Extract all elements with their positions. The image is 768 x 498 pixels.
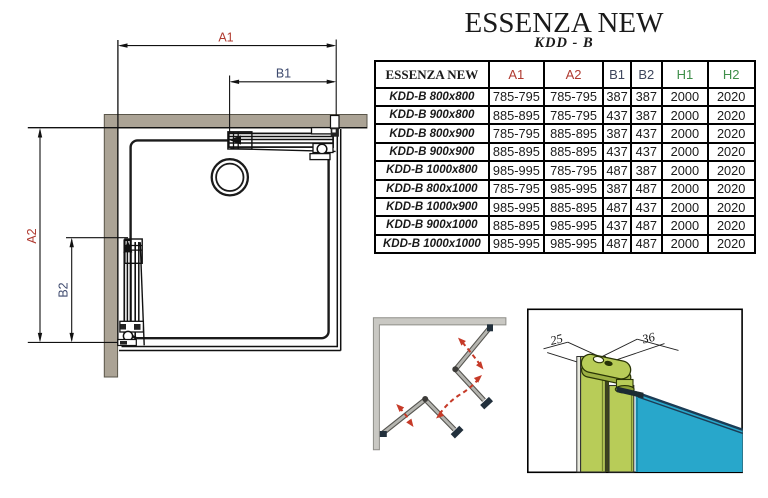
svg-text:B1: B1 <box>276 67 291 81</box>
svg-text:B2: B2 <box>57 282 71 297</box>
svg-text:A2: A2 <box>25 228 39 243</box>
svg-text:A1: A1 <box>218 31 233 45</box>
